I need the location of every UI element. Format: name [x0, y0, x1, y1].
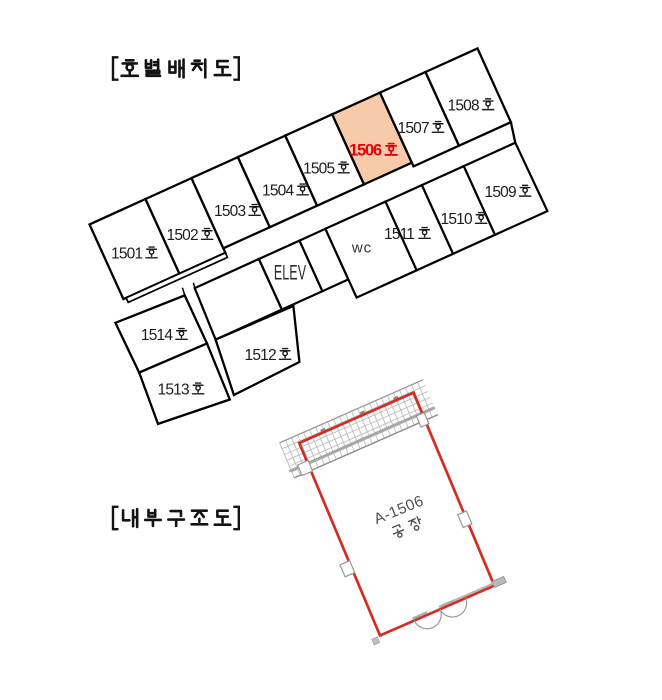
svg-text:1502: 1502: [167, 227, 198, 244]
svg-text:wc: wc: [351, 240, 372, 257]
svg-text:1505: 1505: [303, 161, 334, 178]
svg-text:1512: 1512: [245, 347, 276, 364]
svg-text:1509: 1509: [485, 184, 516, 201]
svg-text:1508: 1508: [448, 97, 479, 114]
svg-text:A-1506: A-1506: [371, 492, 426, 528]
svg-text:1504: 1504: [262, 183, 294, 200]
svg-text:1514: 1514: [141, 327, 173, 344]
svg-text:1510: 1510: [441, 211, 473, 228]
svg-text:ELEV: ELEV: [274, 260, 307, 284]
svg-text:1511: 1511: [384, 226, 414, 243]
svg-text:1513: 1513: [158, 382, 189, 399]
svg-text:1506: 1506: [349, 142, 382, 160]
svg-text:1507: 1507: [398, 120, 429, 137]
svg-text:1503: 1503: [214, 203, 245, 220]
svg-text:1501: 1501: [111, 246, 142, 263]
